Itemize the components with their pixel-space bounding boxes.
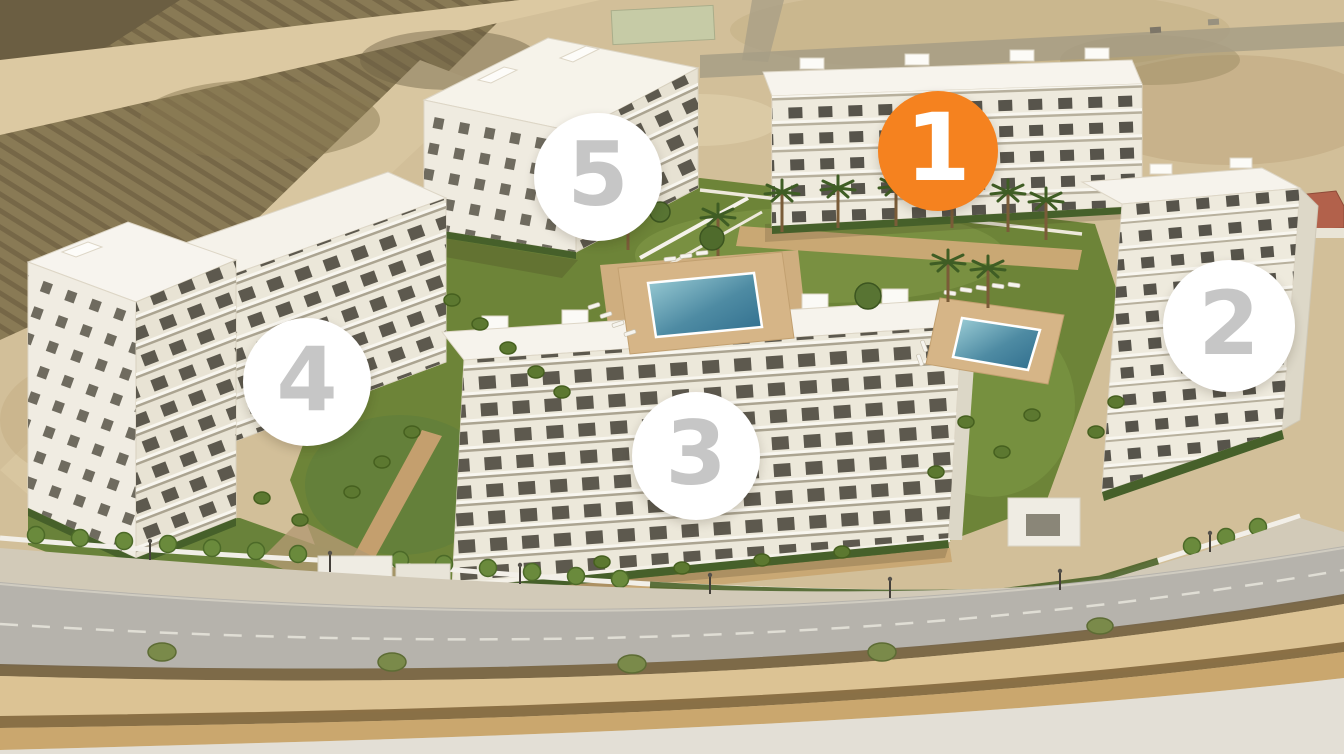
building-marker-3[interactable]: 3 xyxy=(632,392,760,520)
building-marker-5-number: 5 xyxy=(567,131,628,219)
side-gate xyxy=(1008,498,1080,546)
building-marker-1[interactable]: 1 xyxy=(878,91,998,211)
building-marker-3-number: 3 xyxy=(665,410,726,498)
sports-field xyxy=(611,5,715,44)
siteplan-stage: 1 2 3 4 5 xyxy=(0,0,1344,754)
building-marker-1-number: 1 xyxy=(905,102,970,196)
building-marker-4-number: 4 xyxy=(276,336,337,424)
building-marker-2[interactable]: 2 xyxy=(1163,260,1295,392)
aerial-render xyxy=(0,0,1344,754)
building-marker-2-number: 2 xyxy=(1198,280,1259,368)
building-marker-5[interactable]: 5 xyxy=(534,113,662,241)
building-marker-4[interactable]: 4 xyxy=(243,318,371,446)
